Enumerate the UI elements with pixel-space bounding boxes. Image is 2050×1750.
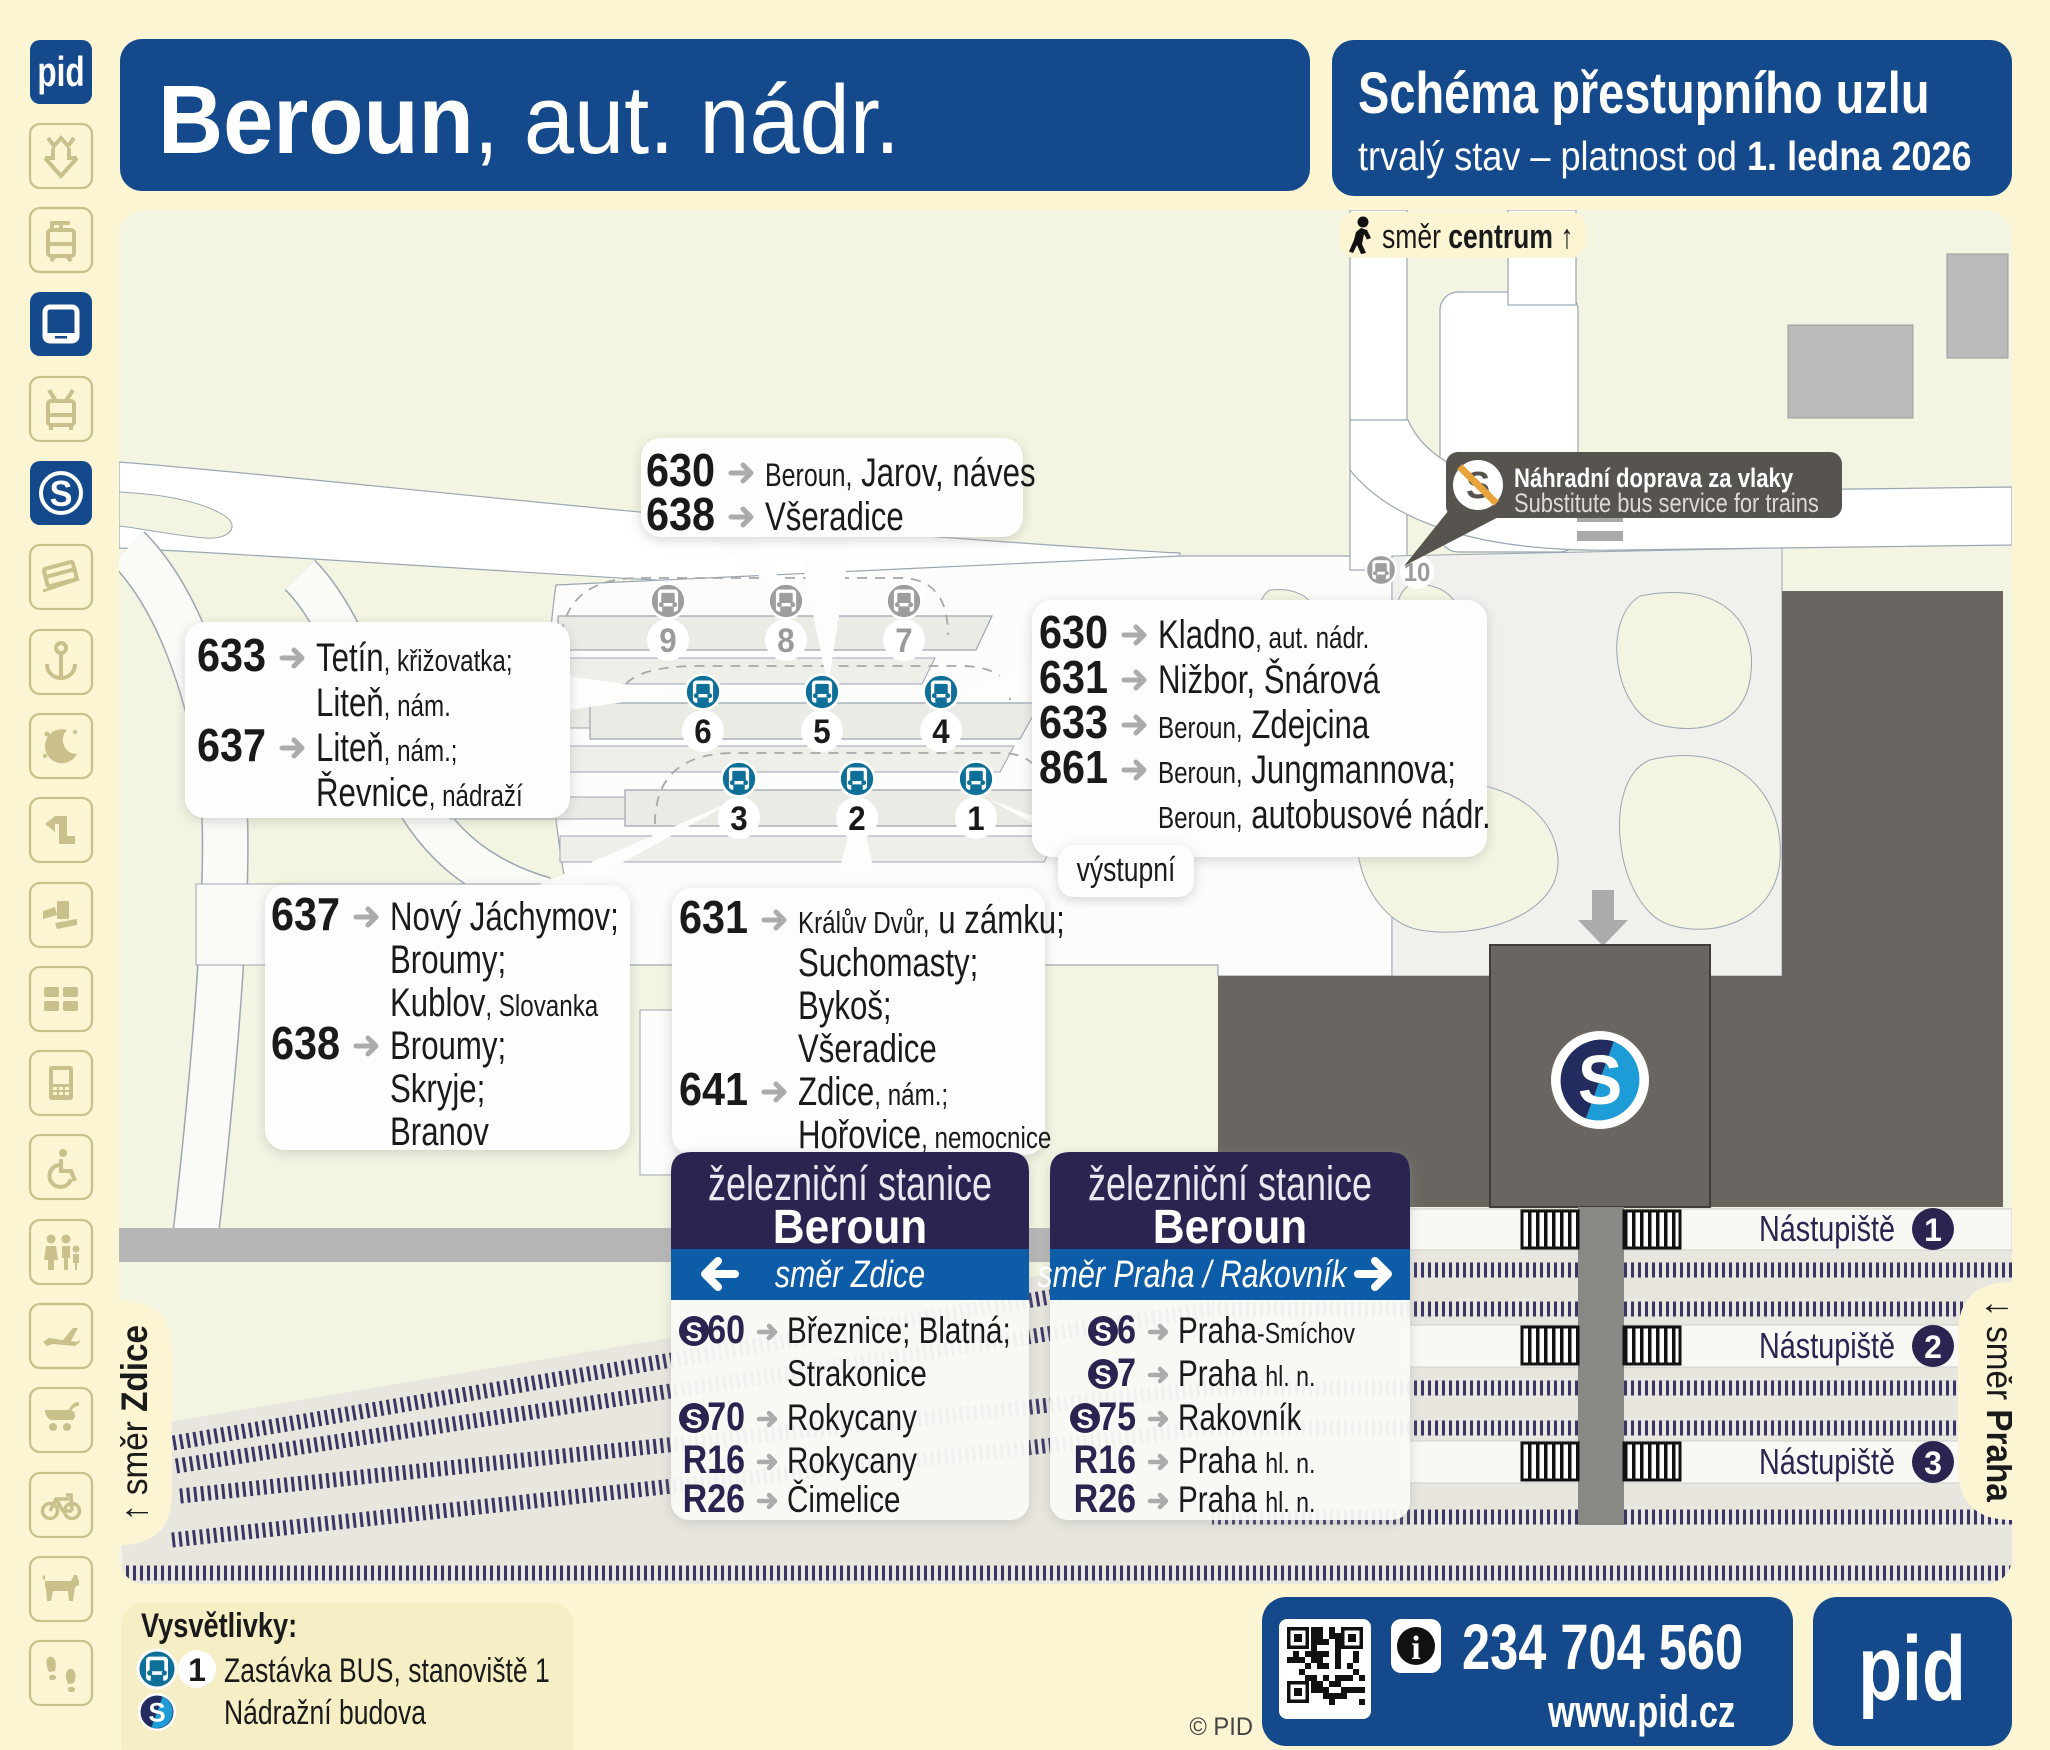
svg-text:2: 2 xyxy=(1924,1329,1942,1365)
svg-text:Beroun: Beroun xyxy=(1153,1199,1308,1253)
svg-text:631: 631 xyxy=(679,892,748,944)
svg-text:směr Zdice: směr Zdice xyxy=(775,1254,925,1296)
svg-text:861: 861 xyxy=(1039,742,1108,794)
svg-text:6: 6 xyxy=(1117,1306,1136,1351)
svg-text:výstupní: výstupní xyxy=(1077,851,1176,889)
svg-text:637: 637 xyxy=(271,889,340,941)
svg-text:Čimelice: Čimelice xyxy=(787,1479,900,1521)
svg-text:630: 630 xyxy=(1039,607,1108,659)
svg-text:631: 631 xyxy=(1039,652,1108,704)
svg-text:Zastávka BUS, stanoviště 1: Zastávka BUS, stanoviště 1 xyxy=(224,1652,550,1690)
svg-text:Substitute bus service for tra: Substitute bus service for trains xyxy=(1514,489,1819,519)
svg-text:Vysvětlivky:: Vysvětlivky: xyxy=(141,1606,297,1645)
svg-text:Praha hl. n.: Praha hl. n. xyxy=(1178,1441,1315,1482)
svg-text:5: 5 xyxy=(813,712,830,751)
svg-text:Skryje;: Skryje; xyxy=(390,1066,485,1111)
svg-text:S: S xyxy=(1578,1041,1622,1119)
svg-text:S: S xyxy=(1076,1403,1093,1434)
svg-text:Nástupiště: Nástupiště xyxy=(1759,1208,1895,1249)
svg-text:Nižbor, Šnárová: Nižbor, Šnárová xyxy=(1158,657,1380,702)
svg-text:S: S xyxy=(1094,1359,1111,1390)
svg-text:70: 70 xyxy=(707,1393,745,1438)
svg-text:S: S xyxy=(50,474,73,514)
svg-text:www.pid.cz: www.pid.cz xyxy=(1547,1687,1735,1737)
svg-text:R26: R26 xyxy=(683,1475,745,1520)
svg-text:S: S xyxy=(685,1403,702,1434)
svg-text:Suchomasty;: Suchomasty; xyxy=(798,940,978,985)
svg-text:Rokycany: Rokycany xyxy=(787,1441,917,1482)
svg-text:641: 641 xyxy=(679,1064,748,1116)
svg-text:směr centrum ↑: směr centrum ↑ xyxy=(1382,218,1574,256)
svg-text:pid: pid xyxy=(37,48,84,96)
svg-text:60: 60 xyxy=(707,1306,745,1351)
svg-text:1: 1 xyxy=(1924,1212,1942,1248)
svg-text:Schéma přestupního uzlu: Schéma přestupního uzlu xyxy=(1358,61,1930,126)
svg-text:Broumy;: Broumy; xyxy=(390,1023,506,1068)
svg-text:Strakonice: Strakonice xyxy=(787,1354,927,1395)
svg-text:638: 638 xyxy=(271,1018,340,1070)
svg-text:Beroun: Beroun xyxy=(773,1199,928,1253)
svg-text:Všeradice: Všeradice xyxy=(798,1026,937,1071)
svg-text:3: 3 xyxy=(730,799,747,838)
svg-text:S: S xyxy=(685,1316,702,1347)
svg-text:1: 1 xyxy=(188,1652,206,1688)
svg-text:Rokycany: Rokycany xyxy=(787,1398,917,1439)
svg-text:2: 2 xyxy=(848,799,865,838)
svg-text:7: 7 xyxy=(1117,1349,1136,1394)
svg-text:1: 1 xyxy=(967,799,984,838)
svg-text:S: S xyxy=(148,1697,165,1728)
svg-text:R26: R26 xyxy=(1074,1475,1136,1520)
svg-text:Březnice; Blatná;: Březnice; Blatná; xyxy=(787,1311,1011,1352)
svg-text:Nový Jáchymov;: Nový Jáchymov; xyxy=(390,894,619,939)
svg-text:633: 633 xyxy=(1039,697,1108,749)
svg-text:3: 3 xyxy=(1924,1445,1942,1481)
svg-text:Branov: Branov xyxy=(390,1109,489,1154)
svg-text:↑ směr Zdice: ↑ směr Zdice xyxy=(114,1325,155,1521)
svg-text:9: 9 xyxy=(659,621,676,660)
svg-text:Praha-Smíchov: Praha-Smíchov xyxy=(1178,1311,1356,1352)
svg-text:638: 638 xyxy=(646,489,715,541)
svg-text:4: 4 xyxy=(932,712,949,751)
svg-text:Bykoš;: Bykoš; xyxy=(798,983,892,1028)
svg-text:Nástupiště: Nástupiště xyxy=(1759,1441,1895,1482)
svg-text:8: 8 xyxy=(777,621,794,660)
svg-text:234 704 560: 234 704 560 xyxy=(1462,1612,1743,1683)
svg-text:S: S xyxy=(1094,1316,1111,1347)
svg-text:směr Praha / Rakovník: směr Praha / Rakovník xyxy=(1037,1254,1348,1296)
svg-text:Nádražní budova: Nádražní budova xyxy=(224,1694,426,1732)
svg-text:633: 633 xyxy=(197,630,266,682)
svg-text:75: 75 xyxy=(1098,1393,1136,1438)
svg-text:Praha hl. n.: Praha hl. n. xyxy=(1178,1354,1315,1395)
svg-text:7: 7 xyxy=(895,621,912,660)
svg-text:Rakovník: Rakovník xyxy=(1178,1398,1302,1439)
svg-text:i: i xyxy=(1411,1630,1420,1667)
svg-text:Beroun, aut. nádr.: Beroun, aut. nádr. xyxy=(158,65,900,174)
svg-text:© PID: © PID xyxy=(1189,1713,1253,1741)
svg-text:trvalý stav – platnost od 1. l: trvalý stav – platnost od 1. ledna 2026 xyxy=(1358,134,1972,180)
svg-text:Všeradice: Všeradice xyxy=(765,494,904,539)
svg-text:Praha hl. n.: Praha hl. n. xyxy=(1178,1480,1315,1521)
svg-text:Broumy;: Broumy; xyxy=(390,937,506,982)
svg-text:pid: pid xyxy=(1858,1617,1966,1720)
svg-text:6: 6 xyxy=(694,712,711,751)
svg-text:637: 637 xyxy=(197,720,266,772)
svg-text:Nástupiště: Nástupiště xyxy=(1759,1325,1895,1366)
